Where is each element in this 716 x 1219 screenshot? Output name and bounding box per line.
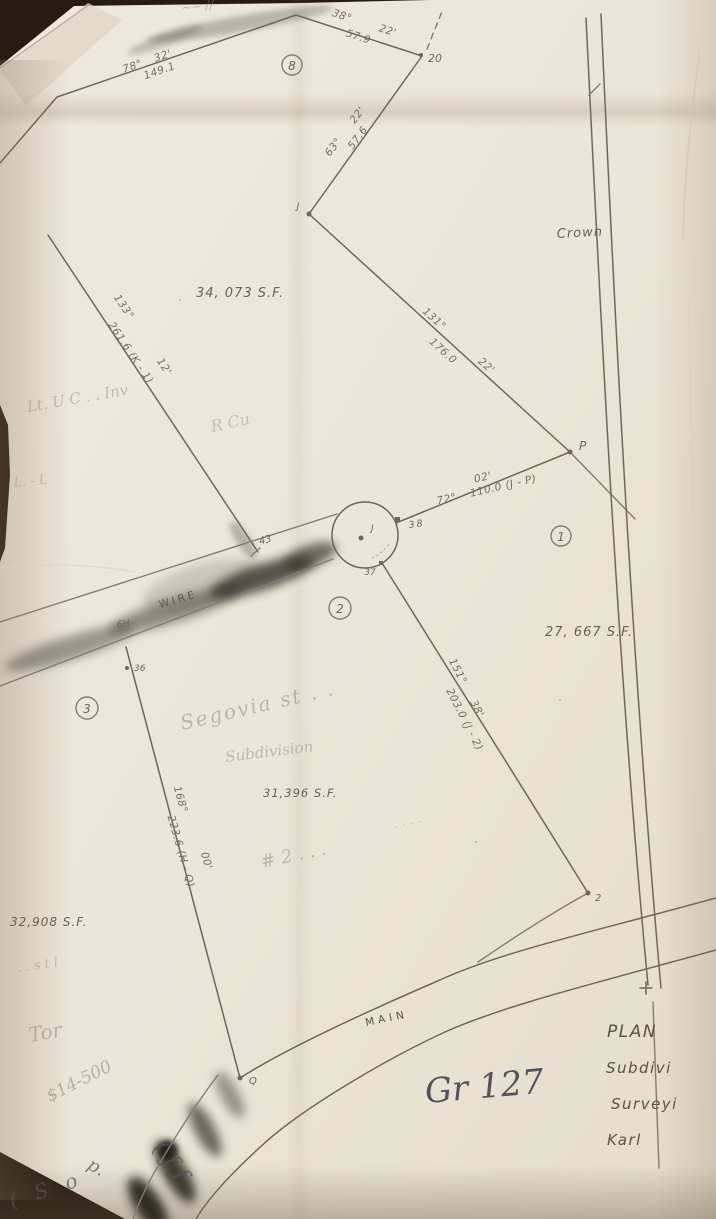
point-q-label: Q	[249, 1076, 257, 1087]
lot3-area: 32,908 S.F.	[10, 915, 87, 929]
point-p-label: P	[579, 439, 587, 453]
point-38-label: 38	[408, 518, 425, 531]
paper-crease	[286, 0, 312, 1219]
lot2-area: 31,396 S.F.	[263, 786, 338, 800]
point-2-label: 2	[595, 893, 601, 904]
point-36-label: 36	[134, 664, 146, 674]
point-6h-label: 6H	[116, 618, 131, 631]
lot8-area: 34, 073 S.F.	[196, 286, 284, 301]
lot2-number: 2	[336, 602, 344, 616]
lot3-number: 3	[83, 702, 91, 716]
plan-drawing: 78° 32' 149.1 38° 22' 57.9 63° 22' 57.6 …	[0, 0, 716, 1219]
lot8-number: 8	[288, 59, 296, 73]
crown-road-label: Crown	[556, 225, 603, 242]
point-20-label: 20	[428, 52, 442, 65]
title-surveyor-name: Karl	[607, 1131, 642, 1149]
survey-plan-photo: 78° 32' 149.1 38° 22' 57.9 63° 22' 57.6 …	[0, 0, 716, 1219]
title-plan: PLAN	[607, 1022, 657, 1042]
title-surveyed: Surveyi	[611, 1095, 678, 1113]
title-subdivision: Subdivi	[606, 1059, 672, 1077]
point-37-label: 37	[364, 568, 376, 578]
lot1-number: 1	[557, 530, 565, 544]
lot1-area: 27, 667 S.F.	[545, 625, 633, 640]
